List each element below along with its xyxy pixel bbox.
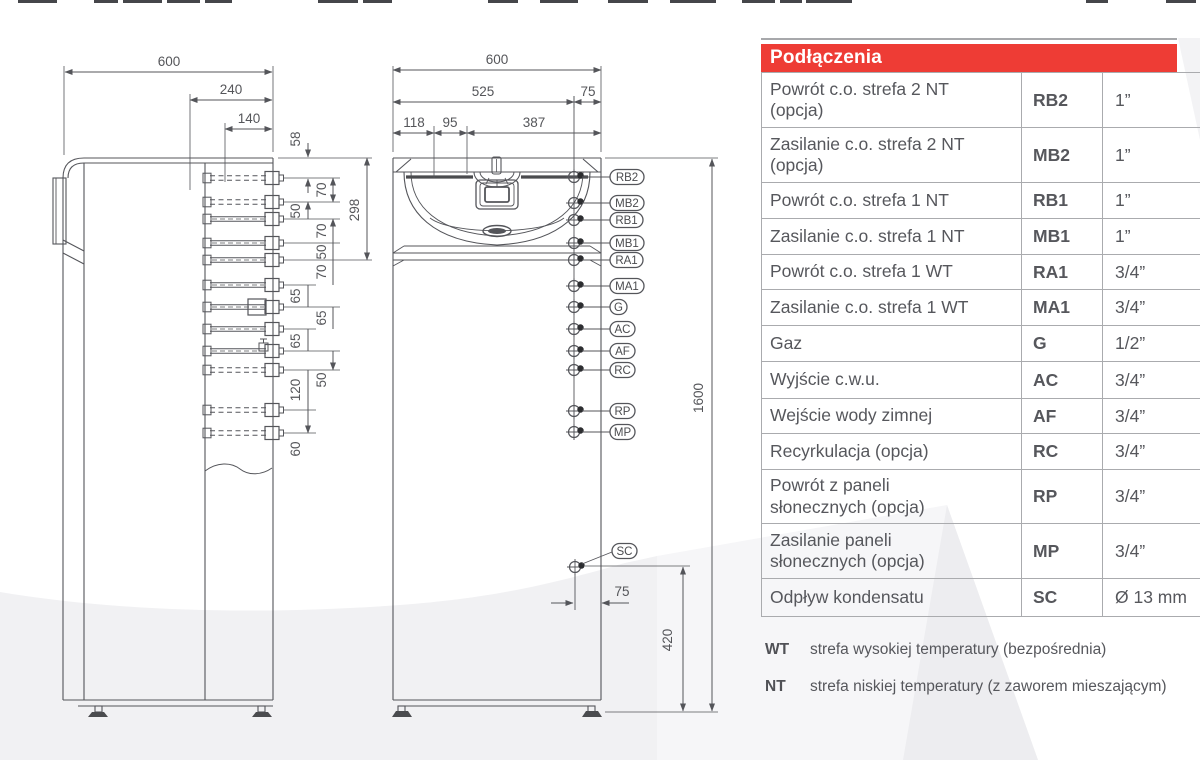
- table-row: Gaz G 1/2”: [762, 326, 1200, 362]
- table-row: Wyjście c.w.u. AC 3/4”: [762, 362, 1200, 399]
- side-front-corner: [63, 158, 84, 178]
- connection-label: MP: [614, 427, 632, 439]
- dim-label: 70: [314, 223, 329, 238]
- table-row: Odpływ kondensatu SC Ø 13 mm: [762, 579, 1200, 617]
- dim-label: 65: [314, 310, 329, 325]
- dim-label: 50: [314, 372, 329, 387]
- table-row: Zasilanie paneli słonecznych (opcja) MP …: [762, 524, 1200, 579]
- side-view-drawing: 600 240 140 58 50 65 65 120 60 70 70 50 …: [53, 54, 372, 717]
- connection-name: Powrót z paneli słonecznych (opcja): [762, 470, 1022, 524]
- side-verticals: [63, 158, 273, 700]
- connection-name: Powrót c.o. strefa 1 WT: [762, 255, 1022, 290]
- dim-label: 600: [158, 54, 181, 69]
- connection-size: 1”: [1103, 219, 1200, 255]
- dim-label: 70: [314, 264, 329, 279]
- side-feet: [88, 706, 272, 717]
- dim-label: 70: [314, 182, 329, 197]
- connection-label: MB1: [615, 238, 639, 250]
- front-top-band: [393, 159, 601, 172]
- dim-label: 118: [403, 115, 425, 130]
- dim-label: 65: [288, 333, 303, 348]
- connection-code: AC: [1022, 362, 1103, 399]
- connection-label: AF: [615, 346, 630, 358]
- front-control-panel: [404, 157, 590, 245]
- connection-label: SC: [617, 546, 633, 558]
- connection-label: RC: [614, 365, 631, 377]
- connection-name: Gaz: [762, 326, 1022, 362]
- side-display-profile: [53, 178, 66, 244]
- connection-points: [566, 169, 585, 575]
- footnote-code: WT: [765, 641, 810, 659]
- connection-labels: RB2 MB2 RB1 MB1 RA1 MA1 G AC AF RC RP MP…: [610, 170, 644, 559]
- front-feet: [392, 706, 602, 717]
- connection-name: Odpływ kondensatu: [762, 579, 1022, 617]
- connection-size: 1”: [1103, 183, 1200, 219]
- side-dim-labels: 600 240 140 58 50 65 65 120 60 70 70 50 …: [158, 54, 362, 457]
- connection-code: RA1: [1022, 255, 1103, 290]
- connections-table: Podłączenia Powrót c.o. strefa 2 NT (opc…: [761, 38, 1177, 617]
- dim-label: 75: [614, 584, 629, 599]
- footnote-text: strefa niskiej temperatury (z zaworem mi…: [810, 678, 1167, 695]
- connection-code: RC: [1022, 434, 1103, 470]
- catalog-page: { "colors": { "header_bg": "#ee3c35", "h…: [0, 0, 1200, 760]
- connection-code: G: [1022, 326, 1103, 362]
- connection-size: 1/2”: [1103, 326, 1200, 362]
- connection-code: RB2: [1022, 73, 1103, 128]
- dim-label: 50: [288, 203, 303, 218]
- table-row: Powrót c.o. strefa 2 NT (opcja) RB2 1”: [762, 73, 1200, 128]
- table-row: Recyrkulacja (opcja) RC 3/4”: [762, 434, 1200, 470]
- connection-size: 3/4”: [1103, 255, 1200, 290]
- side-bottom-edge: [63, 700, 273, 706]
- table-row: Zasilanie c.o. strefa 1 WT MA1 3/4”: [762, 290, 1200, 326]
- connection-label: MA1: [615, 281, 639, 293]
- connection-label: RB2: [616, 172, 638, 184]
- connection-code: RP: [1022, 470, 1103, 524]
- break-line: [205, 464, 272, 474]
- dim-label: 387: [523, 115, 546, 130]
- connection-code: RB1: [1022, 183, 1103, 219]
- connection-size: 3/4”: [1103, 362, 1200, 399]
- connection-label: G: [614, 302, 623, 314]
- connection-name: Powrót c.o. strefa 2 NT (opcja): [762, 73, 1022, 128]
- footnote-wt: WTstrefa wysokiej temperatury (bezpośred…: [765, 641, 1106, 659]
- dim-label: 525: [472, 84, 495, 99]
- connection-size: 3/4”: [1103, 290, 1200, 326]
- dim-label: 50: [314, 244, 329, 259]
- front-extension-lines: [393, 66, 718, 712]
- connection-name: Zasilanie c.o. strefa 1 NT: [762, 219, 1022, 255]
- front-view-drawing: RB2 MB2 RB1 MB1 RA1 MA1 G AC AF RC RP MP…: [392, 52, 718, 717]
- connection-code: SC: [1022, 579, 1103, 617]
- table-row: Wejście wody zimnej AF 3/4”: [762, 399, 1200, 434]
- connection-name: Wyjście c.w.u.: [762, 362, 1022, 399]
- connection-name: Powrót c.o. strefa 1 NT: [762, 183, 1022, 219]
- connection-size: 3/4”: [1103, 524, 1200, 579]
- dim-label: 95: [442, 115, 457, 130]
- dim-label: 240: [220, 82, 243, 97]
- footnote-nt: NTstrefa niskiej temperatury (z zaworem …: [765, 678, 1167, 696]
- table-top-rule: [761, 38, 1177, 40]
- connection-code: MP: [1022, 524, 1103, 579]
- front-dim-labels: 600 525 75 118 95 387 1600 420 75: [403, 52, 706, 651]
- connection-name: Wejście wody zimnej: [762, 399, 1022, 434]
- connection-size: 3/4”: [1103, 434, 1200, 470]
- side-top-edge: [84, 158, 273, 163]
- connection-label: RP: [615, 406, 631, 418]
- connection-name: Zasilanie paneli słonecznych (opcja): [762, 524, 1022, 579]
- table-row: Zasilanie c.o. strefa 1 NT MB1 1”: [762, 219, 1200, 255]
- connection-name: Zasilanie c.o. strefa 1 WT: [762, 290, 1022, 326]
- dim-label: 600: [486, 52, 509, 67]
- table-row: Powrót c.o. strefa 1 WT RA1 3/4”: [762, 255, 1200, 290]
- connection-code: MB1: [1022, 219, 1103, 255]
- connection-code: MB2: [1022, 128, 1103, 183]
- front-dimensions: [393, 70, 712, 711]
- dim-label: 75: [580, 84, 595, 99]
- display-screen: [485, 187, 509, 202]
- dim-label: 1600: [691, 383, 706, 413]
- table-row: Powrót c.o. strefa 1 NT RB1 1”: [762, 183, 1200, 219]
- dim-label: 420: [660, 629, 675, 652]
- footnote-text: strefa wysokiej temperatury (bezpośredni…: [810, 641, 1106, 658]
- connection-code: MA1: [1022, 290, 1103, 326]
- connection-size: 1”: [1103, 73, 1200, 128]
- footnote-code: NT: [765, 678, 810, 696]
- connection-code: AF: [1022, 399, 1103, 434]
- connection-size: 3/4”: [1103, 399, 1200, 434]
- connection-name: Zasilanie c.o. strefa 2 NT (opcja): [762, 128, 1022, 183]
- connection-label: MB2: [615, 198, 639, 210]
- dim-label: 298: [347, 199, 362, 222]
- connection-size: 3/4”: [1103, 470, 1200, 524]
- connection-label: RB1: [615, 215, 637, 227]
- connection-label: AC: [615, 324, 631, 336]
- connection-label: RA1: [615, 255, 637, 267]
- dim-label: 140: [238, 111, 261, 126]
- table-row: Zasilanie c.o. strefa 2 NT (opcja) MB2 1…: [762, 128, 1200, 183]
- dim-label: 58: [288, 131, 303, 146]
- dim-label: 60: [288, 441, 303, 456]
- connection-size: Ø 13 mm: [1103, 579, 1200, 617]
- table-header: Podłączenia: [761, 44, 1177, 72]
- dim-label: 120: [288, 379, 303, 402]
- table-row: Powrót z paneli słonecznych (opcja) RP 3…: [762, 470, 1200, 524]
- side-pipes: [203, 172, 284, 440]
- connection-name: Recyrkulacja (opcja): [762, 434, 1022, 470]
- dim-label: 65: [288, 288, 303, 303]
- connection-size: 1”: [1103, 128, 1200, 183]
